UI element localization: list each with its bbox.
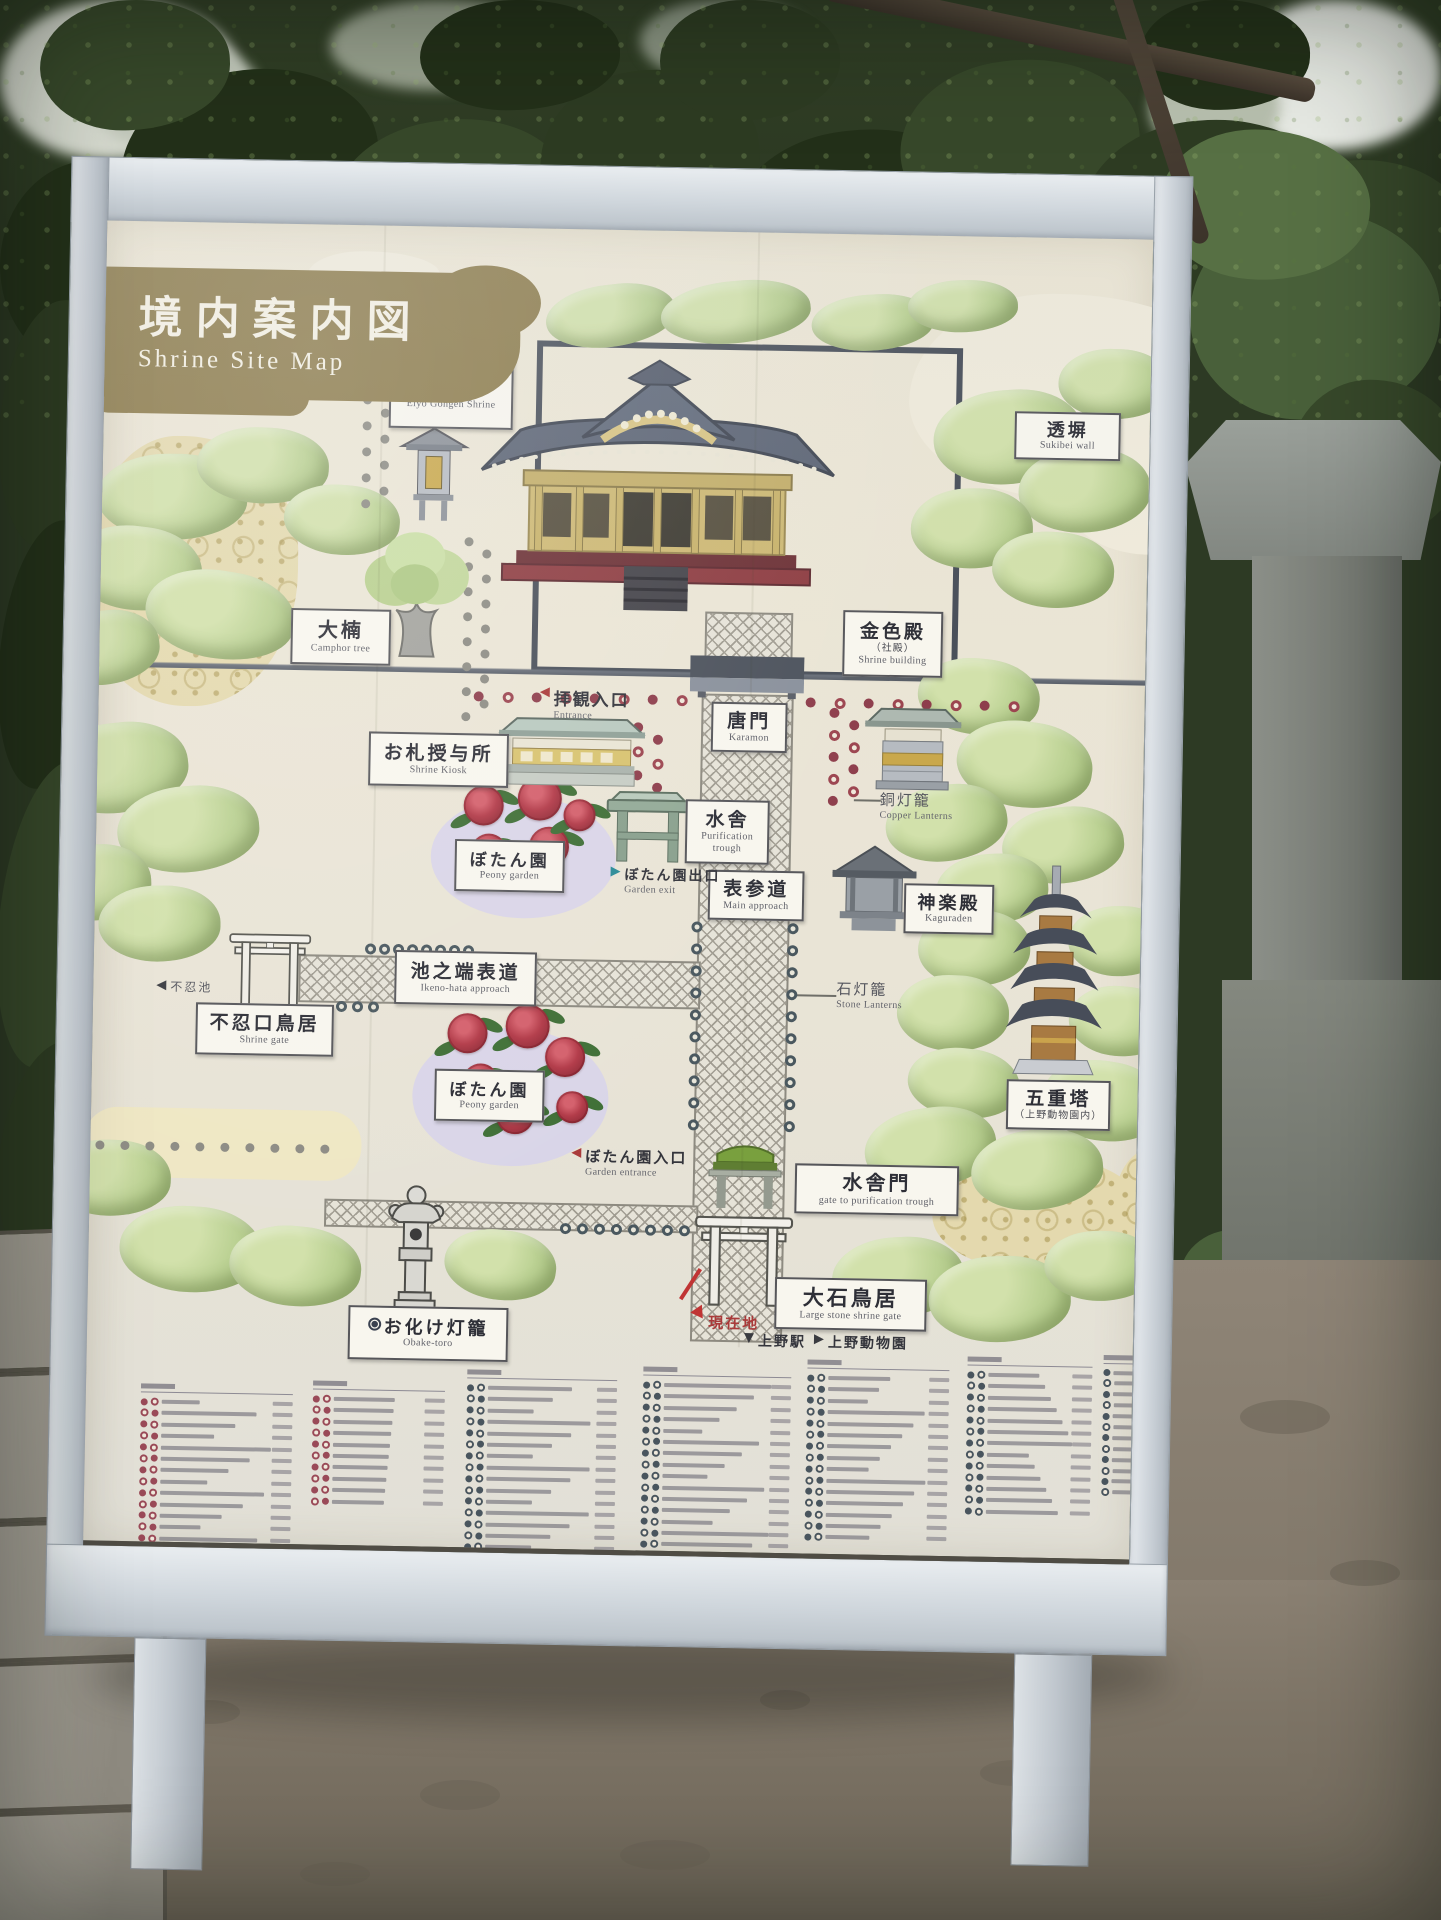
arrow-icon: ◀ [571,1145,581,1162]
label-text-ja: 表参道 [723,879,789,901]
legend-marker-dot [312,1451,320,1459]
legend-row [642,1437,790,1448]
legend-entry-text [987,1441,1072,1447]
label-text-ja: ぼたん園 [449,1080,529,1100]
legend-entry-text [332,1499,384,1504]
legend-marker-dot [977,1371,985,1379]
label-peony-garden-lower: ぼたん園Peony garden [434,1069,545,1123]
legend-row [643,1392,791,1403]
legend-entry-value [1072,1397,1092,1401]
legend-marker-dot [816,1477,823,1484]
route-dot [848,786,859,797]
legend-entry-value [596,1445,616,1449]
legend-row [967,1393,1092,1403]
legend-entry-value [272,1436,292,1440]
legend-entry-text [661,1542,752,1548]
legend-entry-text [487,1443,552,1448]
legend-marker-dot [477,1441,484,1448]
label-sukibei-wall: 透塀Sukibei wall [1014,411,1121,461]
legend-entry-text [161,1411,256,1417]
legend-marker-dot [975,1507,983,1515]
label-text-en: gate to purification trough [819,1194,935,1207]
route-dot [829,730,840,741]
route-dot [220,1143,229,1152]
legend-entry-text [986,1487,1046,1492]
route-dot [363,421,372,430]
note-shinobazu-pond: ◀不忍池 [156,978,212,996]
legend-row [466,1463,616,1474]
legend-row [140,1420,292,1431]
legend-marker-dot [139,1466,146,1473]
legend-entry-text [827,1456,880,1461]
label-text-ja-sub: （上野動物園内） [1014,1109,1102,1122]
route-dot [785,1077,796,1088]
legend-marker-dot [815,1510,823,1518]
legend-entry-text [828,1399,868,1404]
legend-marker-dot [816,1419,824,1427]
legend-marker-dot [653,1404,661,1412]
legend-marker-dot [1103,1401,1111,1409]
legend-entry-text [162,1400,200,1405]
legend-entry-value [272,1447,292,1451]
route-dot [849,742,860,753]
note-garden-exit: ▶ぼたん園出口Garden exit [610,864,721,897]
legend-row [138,1534,290,1545]
legend-entry-value [928,1469,948,1473]
legend-marker-dot [477,1418,484,1425]
legend-marker-dot [1102,1466,1110,1474]
note-text-en: Garden entrance [585,1166,687,1179]
shrine-kiosk-building [496,710,647,793]
note-text: ぼたん園出口Garden exit [624,864,721,897]
legend-marker-dot [817,1397,825,1405]
legend-group-header [313,1380,347,1386]
route-dot [145,1141,154,1150]
note-text: ぼたん園入口Garden entrance [585,1145,688,1179]
legend-entry-value [771,1396,791,1400]
legend-entry-value [927,1480,947,1484]
legend-entry-text [663,1463,725,1468]
legend-marker-dot [653,1415,660,1422]
legend-entry-text [161,1423,235,1428]
note-text-ja: 上野駅 [758,1331,806,1352]
legend-entry-text [826,1524,881,1529]
legend-row [312,1440,444,1450]
legend-entry-value [271,1470,291,1474]
route-dot [480,674,489,683]
legend-marker-dot [474,1520,482,1528]
legend-marker-dot [148,1534,156,1542]
legend-entry-text [663,1451,742,1456]
legend-entry-value [1070,1500,1090,1504]
legend-row [807,1385,949,1396]
legend-marker-dot [818,1386,825,1393]
legend-group-header [141,1383,175,1389]
legend-entry-value [270,1538,290,1542]
legend-marker-dot [150,1501,157,1508]
legend-row [138,1523,290,1534]
legend-entry-value [929,1378,949,1382]
route-dot [462,687,471,696]
legend-marker-dot [476,1509,483,1516]
legend-entry-value [770,1453,790,1457]
legend-entry-text [487,1465,590,1471]
legend-marker-dot [313,1395,320,1402]
legend-entry-text [663,1428,702,1433]
legend-marker-dot [140,1454,148,1462]
legend-marker-dot [816,1522,823,1529]
legend-row [464,1543,614,1554]
legend-entry-text [826,1501,903,1506]
label-text-en: Large stone shrine gate [799,1310,901,1323]
walking-path [324,1199,698,1234]
legend-row [140,1443,292,1454]
map-title-banner: 境内案内図 Shrine Site Map [99,266,521,404]
route-dot [980,701,990,711]
legend-entry-text [160,1514,222,1519]
legend-marker-dot [804,1533,811,1540]
mizuya-gate [702,1136,787,1212]
legend-entry-text [159,1525,200,1530]
legend-entry-value [928,1446,948,1450]
label-text-en: Obake-toro [403,1338,453,1350]
legend-entry-value [596,1467,616,1471]
legend-marker-dot [817,1374,825,1382]
legend-marker-dot [805,1476,813,1484]
legend-row [804,1522,946,1533]
legend-marker-dot [140,1421,147,1428]
legend-marker-dot [806,1465,813,1472]
legend-marker-dot [321,1486,329,1494]
legend-row [467,1383,617,1394]
legend-row [805,1476,947,1487]
route-dot [828,796,838,806]
route-dot [195,1142,204,1151]
legend-marker-dot [806,1442,813,1449]
legend-entry-value [270,1527,290,1531]
legend-marker-dot [816,1500,823,1507]
legend-marker-dot [1101,1478,1108,1485]
label-text-ja: 金色殿 [860,622,926,644]
legend-entry-value [770,1419,790,1423]
legend-entry-value [771,1408,791,1412]
legend-marker-dot [149,1466,157,1474]
legend-marker-dot [465,1486,473,1494]
label-text-en: Shrine building [858,654,926,666]
legend-marker-dot [816,1465,824,1473]
legend-group [137,1383,293,1564]
legend-row [466,1452,616,1463]
legend-marker-dot [805,1511,812,1518]
legend-marker-dot [640,1529,648,1537]
legend-entry-text [986,1475,1040,1480]
legend-marker-dot [643,1404,650,1411]
legend-marker-dot [475,1497,483,1505]
label-text-ja: 神楽殿 [917,893,980,914]
legend-entry-text [663,1417,719,1422]
legend-marker-dot [651,1529,658,1536]
legend-entry-value [928,1435,948,1439]
legend-entry-value [927,1526,947,1530]
legend-row [139,1511,291,1522]
map-title-english: Shrine Site Map [138,345,520,380]
legend-entry-text [334,1408,394,1413]
legend-marker-dot [1102,1423,1110,1431]
legend-row [313,1406,445,1416]
legend-marker-dot [642,1460,650,1468]
label-text-ja: 唐門 [727,711,771,733]
legend-marker-dot [151,1398,159,1406]
legend-entry-text [988,1407,1057,1412]
legend-marker-dot [641,1472,648,1479]
legend-entry-value [929,1412,949,1416]
label-peony-garden-upper: ぼたん園Peony garden [454,839,565,893]
legend-marker-dot [652,1484,659,1491]
legend-row [465,1509,615,1520]
label-omotesando: 表参道Main approach [708,870,805,922]
legend-marker-dot [642,1415,650,1423]
legend-group [464,1369,618,1564]
legend-row [966,1462,1091,1472]
legend-row [313,1394,445,1404]
legend-entry-text [486,1500,532,1505]
legend-marker-dot [966,1439,973,1446]
legend-entry-text [988,1384,1045,1389]
legend-row [965,1496,1090,1506]
label-leader-line [794,994,836,997]
legend-marker-dot [322,1498,329,1505]
legend-marker-dot [966,1450,974,1458]
legend-row [140,1454,292,1465]
route-dot [806,697,816,707]
tree-bush [440,1222,561,1307]
legend-entry-value [926,1537,946,1541]
legend-marker-dot [977,1451,984,1458]
route-dot [848,764,858,774]
legend-entry-value [771,1385,791,1389]
route-dot [628,1224,639,1235]
note-garden-entrance: ◀ぼたん園入口Garden entrance [571,1145,688,1179]
legend-entry-text [664,1394,754,1400]
legend-marker-dot [978,1405,985,1412]
label-text-en: Shrine gate [239,1034,289,1046]
route-dot [785,1033,796,1044]
note-text-ja: ぼたん園出口 [624,864,720,886]
note-text: 上野駅 [758,1331,806,1352]
legend-marker-dot [311,1463,318,1470]
legend-row [464,1520,614,1531]
legend-marker-dot [151,1455,158,1462]
legend-entry-text [826,1478,925,1484]
legend-marker-dot [965,1473,973,1481]
route-dot [270,1144,279,1153]
legend-marker-dot [805,1488,812,1495]
legend-row [465,1486,615,1497]
legend-entry-value [769,1487,789,1491]
legend-entry-text [333,1442,390,1447]
legend-row [806,1453,948,1464]
legend-entry-text [987,1453,1029,1458]
legend-marker-dot [466,1417,474,1425]
note-ueno-station: ▼上野駅 [744,1330,806,1351]
route-dot [594,1224,605,1235]
legend-marker-dot [652,1507,659,1514]
legend-row [139,1477,291,1488]
legend-row [139,1500,291,1511]
tree-bush [658,275,813,350]
note-text-en: Copper Lanterns [879,810,952,822]
legend-marker-dot [321,1463,329,1471]
legend-entry-text [986,1498,1052,1503]
legend-row [139,1488,291,1499]
legend-entry-value [770,1442,790,1446]
legend-row [965,1473,1090,1483]
route-dot [648,695,658,705]
legend-row [643,1403,791,1414]
legend-entry-text [485,1545,531,1550]
legend-entry-text [334,1397,395,1402]
label-text-ja: 大石鳥居 [803,1286,899,1311]
legend-row [641,1483,789,1494]
legend-rule [807,1368,949,1372]
legend-marker-dot [478,1395,485,1402]
legend-row [312,1417,444,1427]
legend-marker-dot [804,1522,812,1530]
note-copper-lanterns: 銅灯籠Copper Lanterns [879,789,953,822]
legend-entry-text [987,1418,1062,1423]
legend-entry-value [596,1456,616,1460]
legend-marker-dot [150,1443,158,1451]
legend-marker-dot [464,1520,471,1527]
legend-entry-text [332,1488,385,1493]
legend-entry-value [424,1444,444,1448]
legend-rule [141,1391,293,1395]
five-story-pagoda-illustration [997,861,1113,1081]
tree-bush [98,886,220,962]
legend-row [312,1451,444,1461]
legend-marker-dot [1103,1379,1111,1387]
legend-entry-value [768,1544,788,1548]
legend-entry-text [664,1406,737,1411]
legend-marker-dot [806,1420,813,1427]
legend-marker-dot [976,1439,984,1447]
note-text-ja: ぼたん園入口 [585,1145,687,1168]
legend-entry-text [333,1454,389,1459]
label-text-en: Main approach [723,900,789,912]
legend-row [642,1460,790,1471]
legend-row [467,1395,617,1406]
legend-marker-dot [653,1438,660,1445]
legend-marker-dot [650,1540,658,1548]
legend-marker-dot [141,1398,148,1405]
legend-marker-dot [1102,1434,1109,1441]
route-dot [786,1011,797,1022]
label-text-en: Kaguraden [925,913,973,925]
legend-entry-value [594,1536,614,1540]
label-text-en: Purification trough [691,831,763,855]
legend-entry-text [161,1434,214,1439]
legend-row [141,1397,293,1408]
signboard-leg-left [130,1637,206,1870]
legend-entry-text [986,1510,1058,1515]
legend-entry-text [333,1431,391,1436]
route-dot [784,1121,795,1132]
route-dot [480,649,489,658]
legend-marker-dot [324,1407,331,1414]
legend-row [805,1499,947,1510]
legend-marker-dot [815,1488,823,1496]
legend-marker-dot [323,1452,330,1459]
legend-row [311,1497,443,1507]
note-text-ja: 不忍池 [170,978,212,996]
legend-marker-dot [966,1427,974,1435]
legend-marker-dot [966,1417,973,1424]
note-text: 拝観入口Entrance [553,685,630,722]
legend-marker-dot [807,1397,814,1404]
legend-marker-dot [311,1497,319,1505]
route-dot [786,989,797,1000]
label-text-en: Peony garden [480,869,540,881]
legend-row [642,1426,790,1437]
legend-entry-text [662,1485,764,1491]
legend-entry-text [663,1440,759,1446]
note-ueno-zoo: ▶上野動物園 [814,1332,908,1354]
route-dot [829,752,839,762]
legend-entry-text [488,1397,553,1402]
legend-marker-dot [465,1509,473,1517]
legend-row [807,1396,949,1407]
legend-entry-value [273,1402,293,1406]
legend-entry-text [161,1445,271,1451]
legend-marker-dot [149,1523,156,1530]
legend-row [466,1440,616,1451]
label-text-en: Peony garden [459,1099,519,1111]
legend-entry-text [662,1520,713,1525]
label-text-en: Camphor tree [311,642,371,654]
label-konjikiden: 金色殿（社殿）Shrine building [842,610,943,678]
label-text-ja: ぼたん園 [470,850,550,870]
legend-marker-dot [977,1428,984,1435]
legend-entry-value [271,1504,291,1508]
label-karamon: 唐門Karamon [711,702,788,753]
legend-marker-dot [312,1429,320,1437]
legend-entry-value [769,1533,789,1537]
legend-entry-value [1071,1431,1091,1435]
legend-entry-value [597,1410,617,1414]
legend-marker-dot [465,1498,472,1505]
legend-row [966,1416,1091,1426]
legend-group-header [1104,1355,1138,1361]
legend-marker-dot [976,1462,984,1470]
legend-marker-dot [476,1452,484,1460]
label-text-en: Shrine Kiosk [410,764,468,776]
note-text-en: Stone Lanterns [836,999,902,1011]
route-dot [295,1144,304,1153]
legend-marker-dot [652,1449,660,1457]
legend-marker-dot [477,1383,485,1391]
label-text-en: Karamon [729,732,769,744]
legend-rule [313,1388,445,1391]
legend-marker-dot [816,1442,824,1450]
label-text-ja-sub: （社殿） [871,643,915,655]
legend-entry-text [664,1383,771,1389]
legend-entry-text [661,1531,768,1537]
legend-row [465,1474,615,1485]
legend-entry-value [424,1433,444,1437]
legend-entry-value [1071,1466,1091,1470]
signboard-leg-right [1010,1653,1092,1866]
legend-marker-dot [814,1533,822,1541]
